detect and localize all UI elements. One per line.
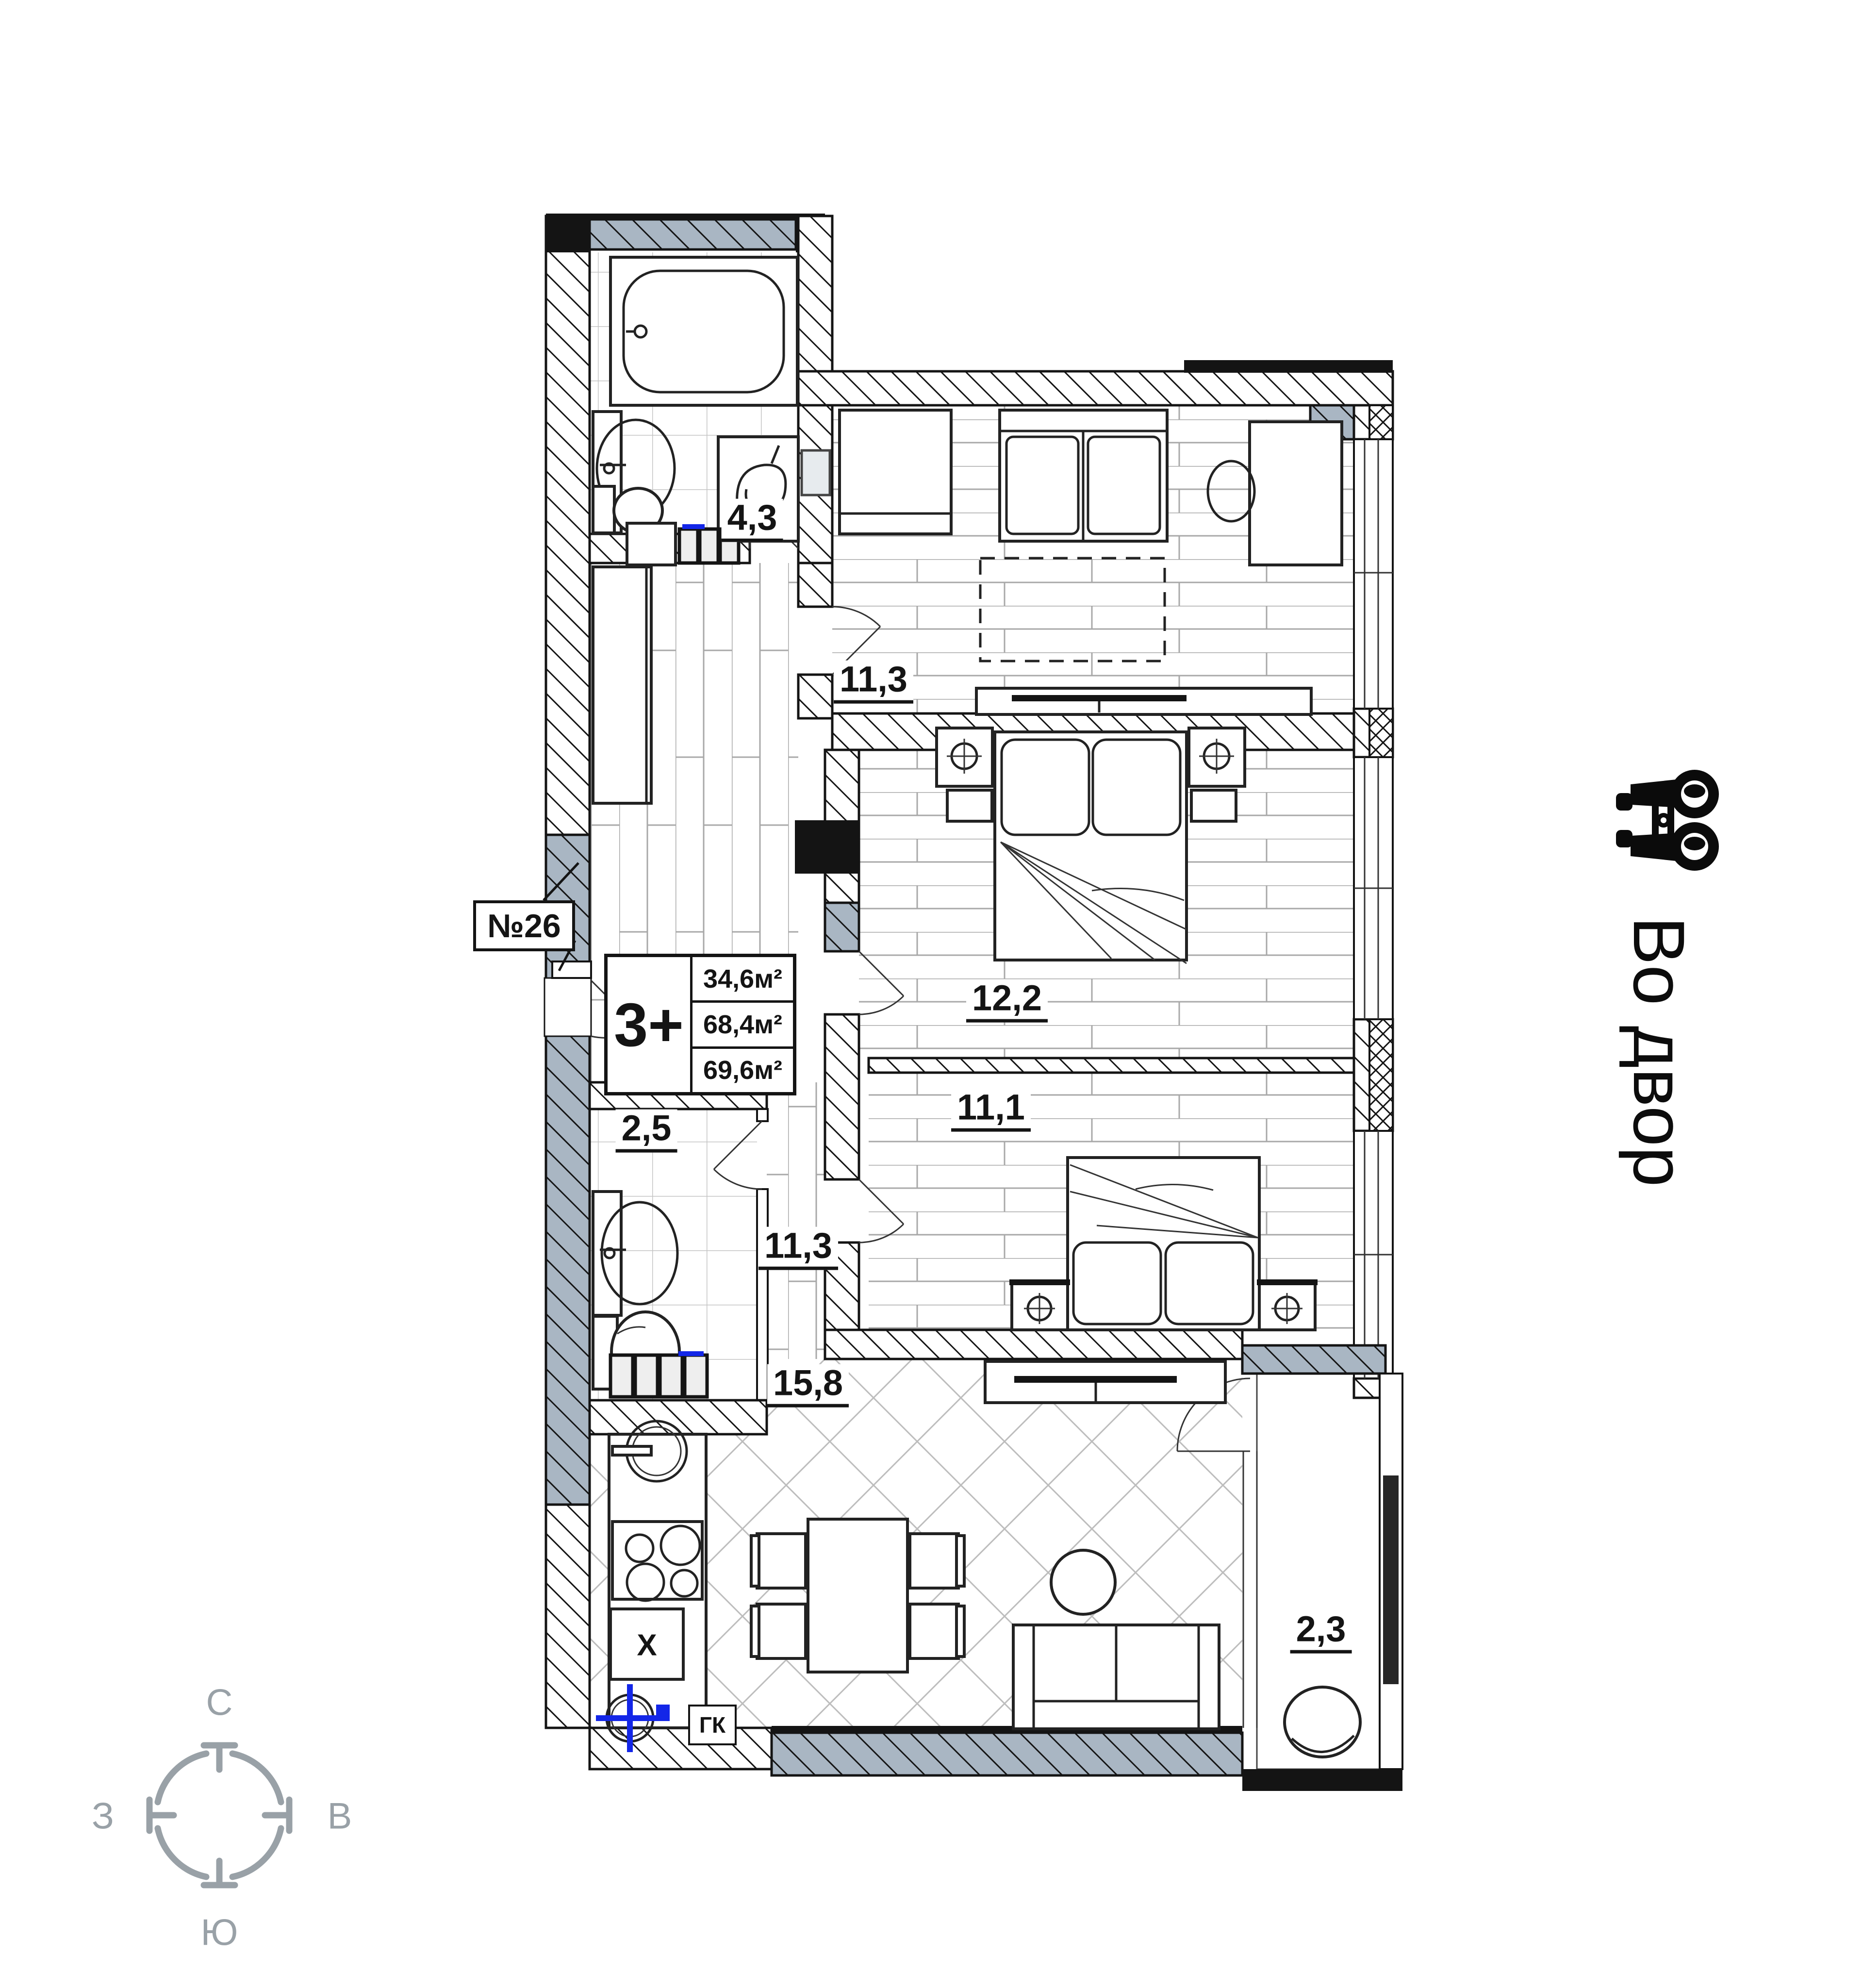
wall-bathroom-small-right-b <box>757 1189 768 1400</box>
bed-bottom <box>1068 1158 1259 1330</box>
apartment-number: №26 <box>487 907 561 945</box>
vent-shaft-bathroom-top <box>802 450 830 495</box>
floor-plan-drawing <box>0 0 1863 1988</box>
bed-middle <box>995 732 1187 963</box>
closet-tag: ГК <box>688 1705 737 1745</box>
apartment-type: 3+ <box>608 957 690 1092</box>
tv-stand-bedroom-top <box>976 688 1311 714</box>
room-label-bedroom-bottom: 11,1 <box>951 1089 1031 1132</box>
apartment-number-tag: №26 <box>473 900 575 951</box>
compass-east: В <box>328 1795 352 1838</box>
wall-balcony-right-solid <box>1383 1475 1399 1684</box>
closet-label: ГК <box>699 1712 725 1738</box>
partition-balcony-glazing <box>1243 1451 1257 1728</box>
window-bedroom-middle <box>1354 757 1393 1019</box>
area-living: 34,6м² <box>692 957 793 1003</box>
wall-top-right-black-band <box>1184 360 1393 373</box>
pier-insulation-1 <box>1369 709 1393 757</box>
blue-marker-3 <box>678 1351 704 1356</box>
apartment-areas: 34,6м² 68,4м² 69,6м² <box>690 957 793 1092</box>
wall-hall-right-b <box>798 675 832 718</box>
entrance-opening <box>544 978 591 1036</box>
wall-balcony-bottom <box>1242 1769 1402 1791</box>
compass-north: С <box>206 1682 233 1724</box>
compass-south: Ю <box>201 1912 238 1954</box>
compass-icon <box>149 1745 289 1885</box>
wall-bedrooms-2-3 <box>869 1058 1354 1073</box>
nightstand-bottom-left <box>1009 1279 1070 1330</box>
floor-plan-page: 4,3 11,3 12,2 11,1 2,5 11,3 15,8 2,3 №26… <box>0 0 1863 1988</box>
wall-hall-right-a <box>798 563 832 607</box>
room-label-balcony: 2,3 <box>1290 1610 1352 1654</box>
nightstand-middle-right <box>1189 728 1245 821</box>
wall-bottom-window-band <box>772 1733 1242 1775</box>
wall-bottom-left <box>590 1728 772 1769</box>
stove <box>612 1522 702 1601</box>
wall-living-top <box>825 1330 1242 1359</box>
appliance-label: Х <box>637 1628 657 1663</box>
radiator-grid-bathroom-small <box>610 1351 707 1397</box>
wall-bathroom-small-right-a <box>757 1109 768 1121</box>
room-label-hallway: 11,3 <box>758 1227 838 1270</box>
blue-marker-1 <box>682 524 705 529</box>
wall-hall-pier <box>795 820 859 874</box>
area-total: 69,6м² <box>692 1049 793 1092</box>
room-label-bathroom-small: 2,5 <box>616 1110 677 1153</box>
hall-wardrobe <box>593 567 651 803</box>
area-usable: 68,4м² <box>692 1003 793 1048</box>
entrance-threshold <box>552 961 591 978</box>
binoculars-icon <box>1616 770 1719 871</box>
tv-stand-living <box>985 1361 1225 1403</box>
wall-top-right-section <box>798 371 1393 405</box>
sofa-living <box>1013 1625 1219 1729</box>
sofa-bedroom-top <box>1000 410 1167 541</box>
bathtub <box>610 257 797 405</box>
pier-insulation-3 <box>1369 405 1393 439</box>
floor-hallway-lower <box>767 1082 825 1359</box>
window-bedroom-balcony <box>1242 1345 1385 1374</box>
room-label-bedroom-top: 11,3 <box>834 661 913 704</box>
room-label-bedroom-middle: 12,2 <box>966 979 1048 1023</box>
nightstand-bottom-right <box>1257 1279 1318 1330</box>
wall-top-window-block <box>590 219 796 249</box>
coffee-table <box>1051 1550 1115 1614</box>
room-label-bathroom-top: 4,3 <box>722 499 783 542</box>
wall-hall-shaft <box>825 903 859 951</box>
compass-west: З <box>92 1795 114 1838</box>
wall-top-left-corner <box>546 216 590 252</box>
wardrobe-bedroom-top <box>840 410 951 534</box>
balcony-armchair <box>1285 1687 1360 1757</box>
view-direction-label: Во двор <box>1617 916 1701 1187</box>
pier-insulation-2 <box>1369 1019 1393 1131</box>
apartment-info-box: 3+ 34,6м² 68,4м² 69,6м² <box>604 954 796 1095</box>
room-label-kitchen-living: 15,8 <box>767 1364 849 1408</box>
window-bedroom-bottom <box>1354 1131 1393 1378</box>
kitchen-faucet <box>612 1446 651 1455</box>
wall-hall-right-d <box>825 1014 859 1179</box>
window-bedroom-top <box>1354 439 1393 709</box>
